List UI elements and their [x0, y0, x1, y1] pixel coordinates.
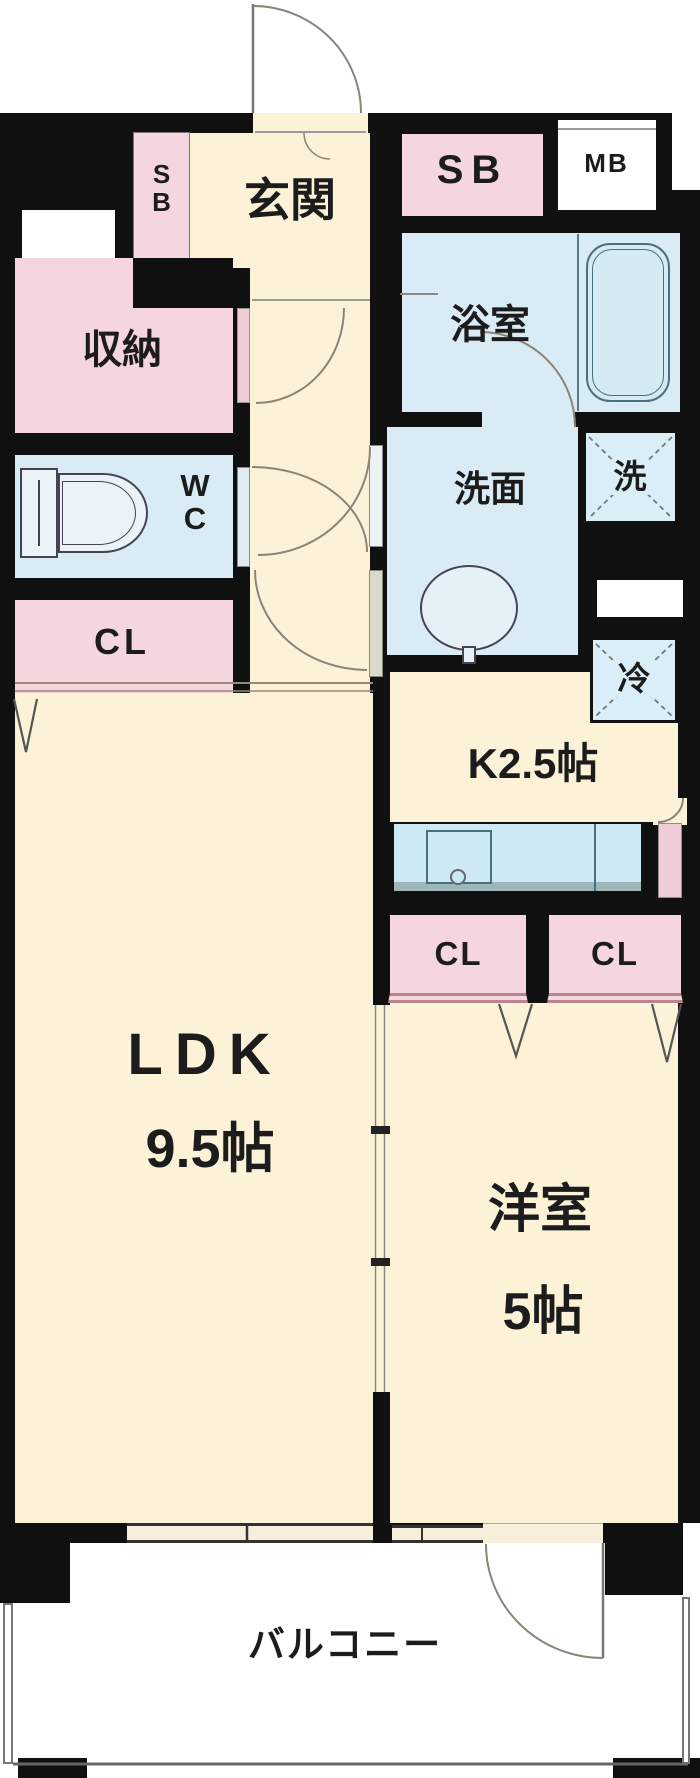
sliding-door-gap	[370, 1005, 390, 1392]
kitchen-faucet	[450, 869, 466, 885]
label-kitchen: K2.5帖	[393, 741, 673, 786]
wall-storage-corner	[133, 258, 233, 308]
toilet-bowl	[58, 473, 148, 553]
kitchen-counter	[392, 822, 643, 893]
label-closet-right: CL	[550, 936, 680, 972]
wash-basin-faucet	[462, 646, 476, 664]
door-leaf-storage	[237, 308, 250, 403]
label-refrigerator: 冷	[615, 661, 653, 697]
toilet-bowl-inner	[62, 481, 136, 545]
bathtub	[586, 243, 670, 402]
label-ldk: LDK	[55, 1024, 355, 1087]
label-washroom: 洗面	[400, 470, 580, 509]
label-ldk-size: 9.5帖	[60, 1120, 360, 1178]
hallway	[250, 268, 370, 695]
window-western	[392, 1525, 483, 1543]
label-closet-left: CL	[392, 936, 525, 972]
window-ldk	[127, 1523, 373, 1543]
balcony-wall-left	[3, 1603, 13, 1764]
floor-plan: 玄関 SB SB MB 浴室 収納 WC 洗面 洗 CL 冷 K2.5帖 CL …	[0, 0, 700, 1778]
label-closet-hall: CL	[22, 623, 222, 662]
label-meter-box: MB	[558, 149, 655, 177]
entry-door-arc	[253, 6, 361, 113]
door-leaf-toilet	[237, 467, 250, 567]
balcony-door-threshold	[483, 1523, 603, 1543]
recess-bottom-right	[683, 1523, 700, 1597]
room-ldk	[15, 693, 373, 1523]
toilet-tank	[20, 468, 58, 558]
balcony-wall-right	[682, 1597, 690, 1764]
label-bathroom: 浴室	[400, 304, 580, 347]
bathtub-inner-line	[592, 249, 664, 396]
wash-basin	[420, 565, 518, 651]
entry-opening	[253, 113, 368, 135]
wall-balcony-corner-left	[18, 1758, 87, 1778]
kitchen-door-patch	[653, 798, 687, 825]
label-storage: 収納	[32, 329, 212, 372]
wall-opening-right	[597, 580, 683, 617]
toilet-tank-line	[38, 480, 40, 546]
bathroom-door-gap	[482, 412, 575, 427]
label-entrance: 玄関	[197, 176, 383, 226]
room-western	[390, 1003, 678, 1523]
wall-bottom-left	[0, 1543, 70, 1603]
label-western-room: 洋室	[415, 1182, 665, 1238]
wall-pillar-bottom-right	[605, 1523, 683, 1595]
door-leaf-washroom	[369, 445, 383, 547]
door-leaf-kitchen	[658, 823, 682, 898]
label-toilet: WC	[177, 469, 213, 536]
label-shoe-box: SB	[402, 149, 543, 192]
door-leaf-ldk	[369, 570, 383, 677]
label-shoe-box-vertical: SB	[146, 160, 177, 216]
label-washer: 洗	[611, 459, 649, 495]
recess-top-left	[22, 210, 115, 258]
label-balcony: バルコニー	[165, 1625, 525, 1665]
label-western-room-size: 5帖	[418, 1284, 668, 1340]
recess-top-right	[672, 113, 700, 190]
